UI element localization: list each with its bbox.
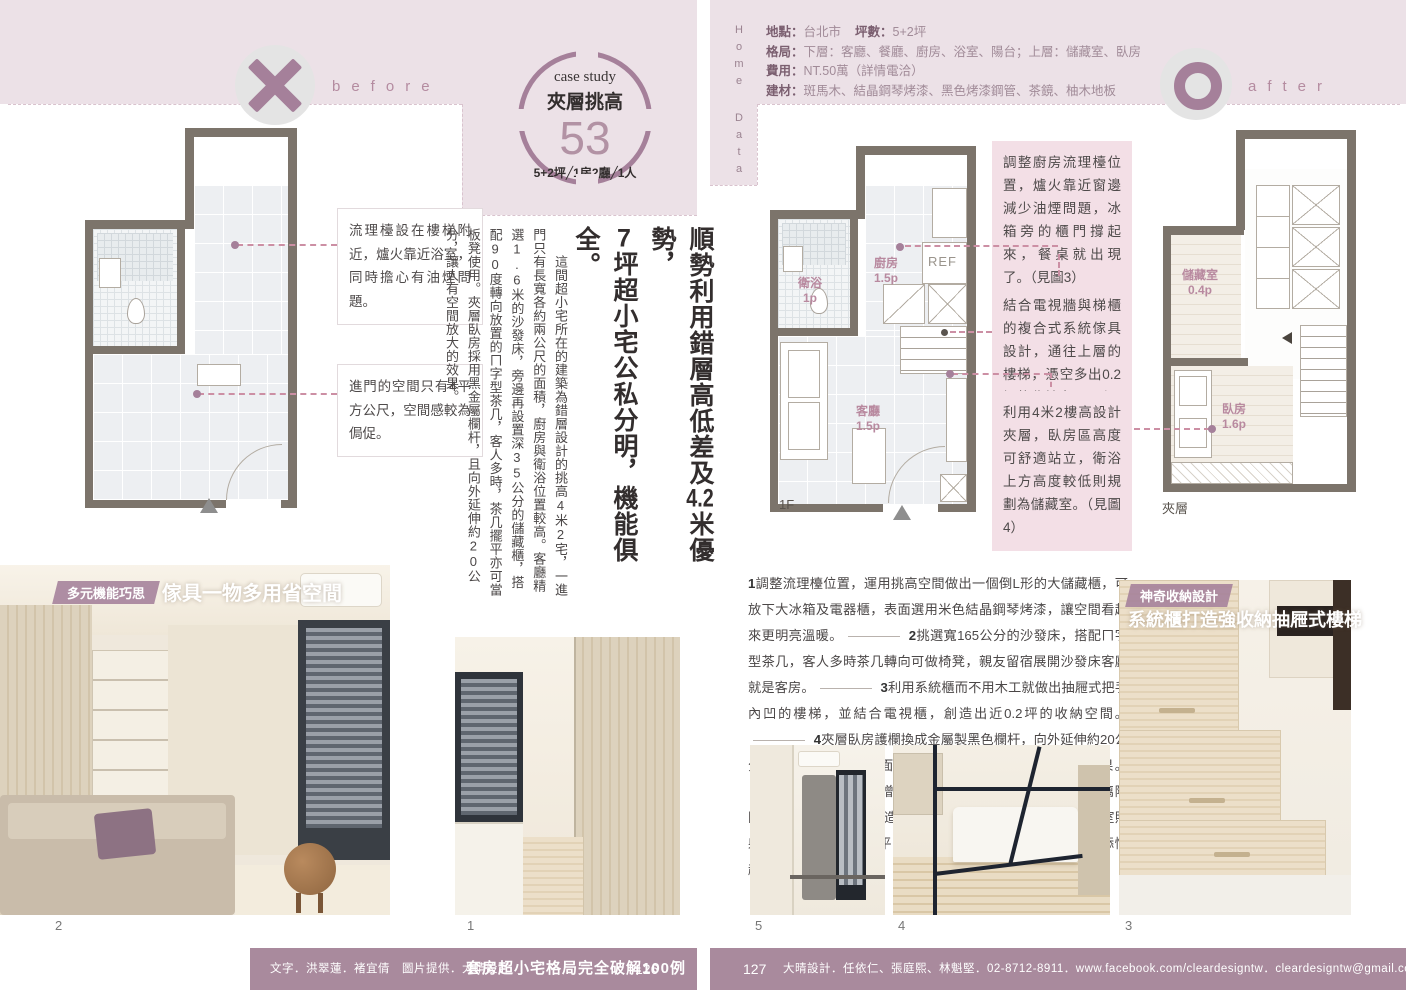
room-label-bedroom: 臥房1.6p [1222,402,1246,432]
page-number: 126 [635,948,658,990]
after-label: after [1248,78,1333,95]
floorplan-1f: REF 廚房1.5p [770,146,976,512]
panel-edge [462,104,463,215]
home-data-vertical-label: Home [733,24,745,92]
fridge-label: REF [928,254,957,269]
caption-badge: 多元機能巧思 [52,581,160,604]
home-data-row: 費用：NT.50萬（詳情電洽） [766,62,1141,82]
page-number: 127 [743,948,766,990]
panel-edge [8,104,462,105]
case-study-number: 53 [523,115,647,161]
before-label: before [332,78,441,95]
leader-line [1050,373,1052,387]
caption-title: 傢具一物多用省空間 [162,577,342,606]
panel-edge [462,215,697,216]
leader-dot [1208,425,1216,433]
photo-4-bedroom [893,745,1110,915]
photo-1-mezzanine [455,637,680,915]
home-data-vertical-label: Data [733,112,745,180]
home-data-row: 建材：斑馬木、結晶鋼琴烤漆、黑色烤漆鋼管、茶鏡、柚木地板 [766,82,1141,102]
leader-dot [231,241,239,249]
caption-badge: 神奇收納設計 [1125,584,1233,607]
room-label-storage: 儲藏室0.4p [1182,268,1218,298]
leader-line [198,393,337,395]
left-footer: 文字．洪翠蓮．褚宜倩 圖片提供．大晴設計 套房超小宅格局完全破解100例 126 [250,948,697,990]
leader-line [952,373,1050,375]
leader-dot [941,329,948,336]
home-data-row: 格局：下層：客廳、餐廳、廚房、浴室、陽台；上層：儲藏室、臥房 [766,43,1141,63]
floorplan-mezzanine: 儲藏室0.4p 臥房1.6p [1160,130,1356,492]
callout: 利用4米2樓高設計夾層，臥房區高度可舒適站立，衛浴上方高度較低則規劃為儲藏室。（… [992,391,1132,551]
leader-line [905,245,1058,247]
headline-line-1: 順勢利用錯層高低差及4.2米優勢， [643,226,719,608]
leader-dot [946,370,954,378]
leader-line [237,244,337,246]
headline-line-2: 7坪超小宅公私分明，機能俱全。 [567,226,643,608]
photo-number: 1 [467,918,474,933]
leader-line [1058,254,1060,276]
photo-2-living-room [0,565,390,915]
case-study-badge: case study 夾層挑高 53 5+2坪╱1房2廳╱1人 [518,51,652,185]
photo-5-corridor [750,745,885,915]
photo-number: 3 [1125,918,1132,933]
leader-dot [896,243,904,251]
callout: 調整廚房流理檯位置，爐火靠近窗邊減少油煙問題，冰箱旁的櫃門撐起來，餐桌就出現了。… [992,141,1132,301]
plan-label-1f: 1F [779,497,794,512]
after-badge [1160,48,1232,120]
intro-paragraph: 這間超小宅所在的建築為錯層設計的挑高4米2宅，一進門只有長寬各約兩公尺的面積，廚… [461,228,571,602]
room-label-bath: 衛浴1p [798,276,822,306]
leader-line [1134,428,1210,430]
plan-label-mezzanine: 夾層 [1162,498,1188,517]
caption-title: 系統櫃打造強收納抽屜式樓梯 [1128,606,1362,632]
home-data-row: 地點：台北市坪數：5+2坪 [766,23,1141,43]
leader-dot [193,390,201,398]
photo-number: 5 [755,918,762,933]
o-icon [1174,62,1222,110]
credits: 大晴設計．任依仁、張庭熙、林魁堅．02-8712-8911．www.facebo… [783,948,1406,990]
stair-arrow [1282,332,1292,344]
photo-number: 4 [898,918,905,933]
room-label-kitchen: 廚房1.5p [874,256,898,286]
panel-edge [757,104,1400,105]
north-arrow [893,505,911,520]
panel-edge [757,104,758,185]
headline: 順勢利用錯層高低差及4.2米優勢， 7坪超小宅公私分明，機能俱全。 [567,226,719,608]
magazine-spread: before case study 夾層挑高 53 5+2坪╱1房2廳╱1人 [0,0,1406,1000]
room-label-living: 客廳1.5p [856,404,880,434]
right-footer: 127 大晴設計．任依仁、張庭熙、林魁堅．02-8712-8911．www.fa… [710,948,1406,990]
home-data: 地點：台北市坪數：5+2坪 格局：下層：客廳、餐廳、廚房、浴室、陽台；上層：儲藏… [766,23,1141,101]
photo-number: 2 [55,918,62,933]
case-study-kicker: case study [523,69,647,86]
north-arrow [200,498,218,513]
floorplan-before [85,128,297,508]
panel-edge [710,185,757,186]
before-badge [235,45,315,125]
case-study-title: 夾層挑高 [523,87,647,114]
leader-line [950,331,992,333]
